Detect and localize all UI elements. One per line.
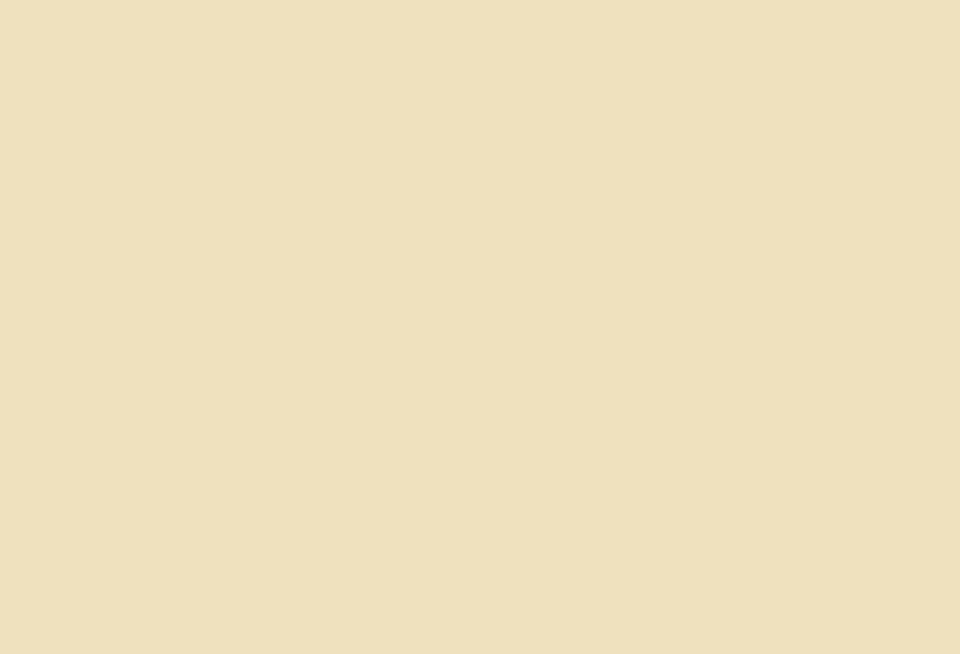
scene-canvas (0, 0, 960, 654)
architectural-render-view (0, 0, 960, 654)
